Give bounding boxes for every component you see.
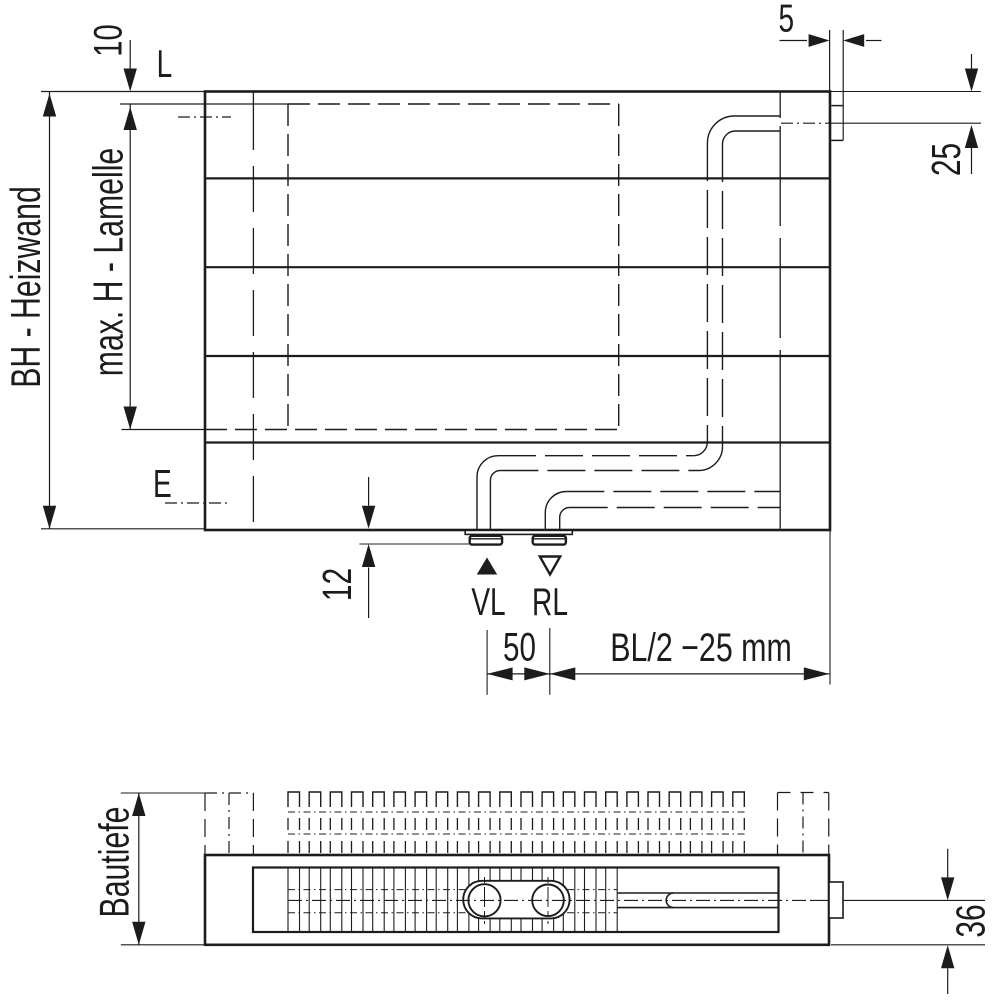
svg-text:E: E xyxy=(153,463,172,507)
svg-text:Bautiefe: Bautiefe xyxy=(91,807,138,918)
svg-text:L: L xyxy=(157,43,173,87)
svg-text:5: 5 xyxy=(778,0,794,41)
svg-text:25: 25 xyxy=(923,143,969,176)
svg-text:VL: VL xyxy=(471,581,505,625)
svg-text:12: 12 xyxy=(314,568,360,601)
svg-text:BL/2 −25 mm: BL/2 −25 mm xyxy=(610,625,792,670)
svg-text:max. H - Lamelle: max. H - Lamelle xyxy=(85,148,132,376)
svg-text:50: 50 xyxy=(503,625,536,669)
svg-text:RL: RL xyxy=(532,581,568,625)
svg-text:BH - Heizwand: BH - Heizwand xyxy=(2,186,49,388)
svg-text:36: 36 xyxy=(948,904,994,937)
svg-text:10: 10 xyxy=(86,24,131,56)
